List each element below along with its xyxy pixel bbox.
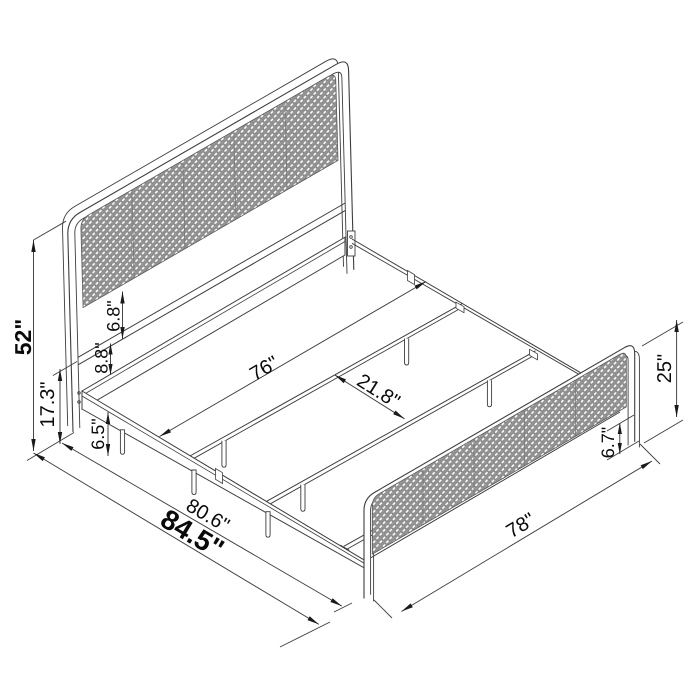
svg-text:8.8": 8.8" — [92, 342, 112, 373]
svg-text:17.3": 17.3" — [37, 381, 59, 427]
svg-text:6.7": 6.7" — [598, 427, 618, 458]
svg-text:6.5": 6.5" — [88, 418, 108, 449]
svg-text:6.8": 6.8" — [104, 300, 124, 331]
svg-text:25": 25" — [654, 354, 676, 383]
svg-text:52": 52" — [10, 319, 36, 356]
